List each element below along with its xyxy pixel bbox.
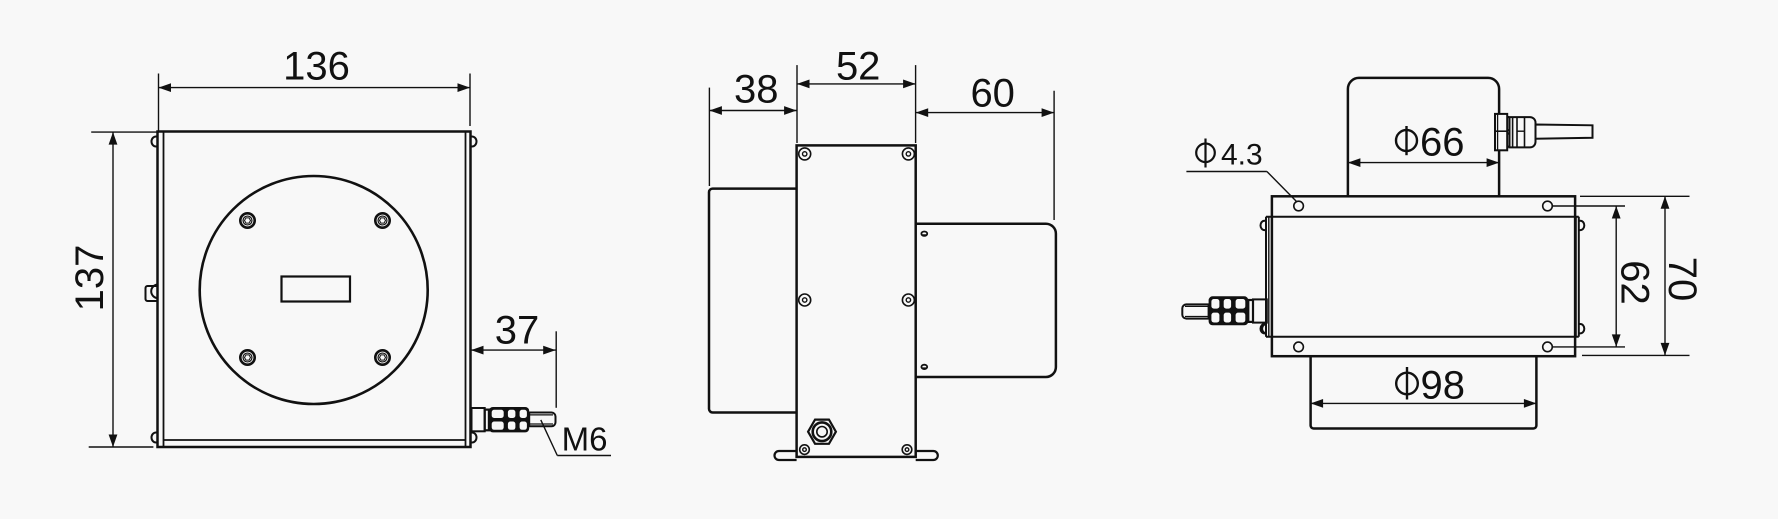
svg-text:66: 66 — [1420, 120, 1465, 164]
svg-text:M6: M6 — [562, 420, 608, 457]
svg-text:136: 136 — [283, 45, 350, 89]
svg-text:38: 38 — [734, 68, 779, 112]
svg-text:60: 60 — [970, 72, 1015, 116]
svg-text:98: 98 — [1421, 364, 1466, 408]
svg-text:137: 137 — [68, 245, 112, 312]
svg-text:70: 70 — [1660, 257, 1704, 302]
svg-text:62: 62 — [1613, 260, 1657, 305]
svg-text:4.3: 4.3 — [1221, 139, 1263, 172]
svg-text:37: 37 — [495, 309, 540, 353]
svg-text:52: 52 — [836, 44, 881, 88]
